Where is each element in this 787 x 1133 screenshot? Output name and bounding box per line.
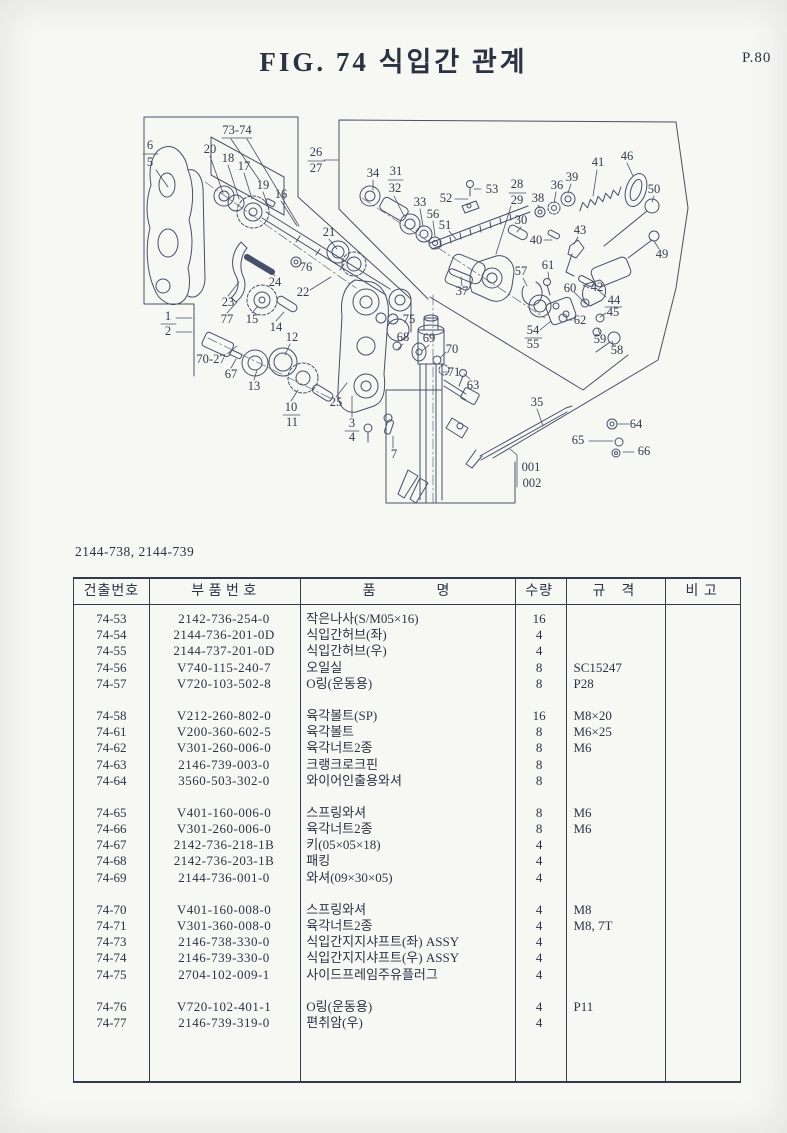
table-cell: 스프링와셔: [299, 902, 513, 918]
table-cell: [565, 611, 664, 627]
table-cell: [663, 773, 740, 789]
table-cell: 74-73: [74, 934, 149, 950]
table-cell: 8: [514, 660, 565, 676]
table-cell: 2146-738-330-0: [149, 934, 300, 950]
part-label: 70-27: [196, 352, 225, 366]
table-cell: 16: [514, 708, 565, 724]
part-label: 58: [611, 343, 624, 357]
part-label: 2: [165, 324, 171, 338]
table-cell: 74-75: [74, 967, 149, 983]
table-cell: [565, 837, 664, 853]
table-cell: [663, 870, 740, 886]
part-label: 34: [367, 166, 380, 180]
part-label: 1: [165, 309, 171, 323]
part-label: 001: [522, 460, 541, 474]
table-cell: V401-160-006-0: [149, 805, 300, 821]
table-row: 74-57V720-103-502-8O링(운동용)8P28: [74, 676, 740, 692]
catalog-page: { "page": { "title": "FIG. 74 식입간 관계", "…: [0, 0, 787, 1133]
table-cell: 식입간허브(좌): [299, 627, 513, 643]
part-label: 46: [621, 149, 634, 163]
part-label: 67: [225, 367, 238, 381]
header-cell: 부 품 번 호: [149, 579, 300, 604]
table-cell: 4: [514, 934, 565, 950]
table-cell: V212-260-802-0: [149, 708, 300, 724]
part-label: 38: [532, 191, 545, 205]
table-cell: 2144-736-201-0D: [149, 627, 300, 643]
table-cell: [565, 934, 664, 950]
table-cell: [565, 950, 664, 966]
part-label: 22: [297, 285, 310, 299]
part-label: 63: [467, 378, 480, 392]
part-label: 41: [592, 155, 605, 169]
part-label: 57: [515, 264, 528, 278]
part-label: 37: [456, 284, 469, 298]
table-cell: 키(05×05×18): [299, 837, 513, 853]
part-label: 13: [248, 379, 261, 393]
table-cell: 74-77: [74, 1015, 149, 1031]
table-cell: [663, 757, 740, 773]
part-label: 24: [269, 275, 282, 289]
table-cell: [565, 870, 664, 886]
table-cell: 식입간지지샤프트(우) ASSY: [299, 950, 513, 966]
table-cell: 8: [514, 676, 565, 692]
table-row: 74-692144-736-001-0와셔(09×30×05)4: [74, 870, 740, 886]
table-cell: 74-63: [74, 757, 149, 773]
table-row: 74-56V740-115-240-7오일실8SC15247: [74, 660, 740, 676]
part-label: 40: [530, 233, 543, 247]
part-label: 64: [630, 417, 643, 431]
part-label: 39: [566, 170, 579, 184]
table-row: 74-61V200-360-602-5육각볼트8M6×25: [74, 724, 740, 740]
table-cell: 육각볼트(SP): [299, 708, 513, 724]
table-cell: 2146-739-319-0: [149, 1015, 300, 1031]
table-cell: [663, 950, 740, 966]
table-cell: 4: [514, 643, 565, 659]
part-label: 73-74: [222, 123, 252, 137]
part-label: 53: [486, 182, 499, 196]
table-cell: 74-66: [74, 821, 149, 837]
part-label: 6: [147, 138, 153, 152]
part-label: 70: [446, 342, 459, 356]
table-cell: 4: [514, 853, 565, 869]
table-cell: 육각너트2종: [299, 918, 513, 934]
column-divider: [665, 579, 666, 1081]
row-group: 74-58V212-260-802-0육각볼트(SP)16M8×2074-61V…: [74, 708, 740, 789]
table-cell: 2704-102-009-1: [149, 967, 300, 983]
part-label: 68: [397, 330, 410, 344]
table-cell: 사이드프레임주유플러그: [299, 967, 513, 983]
header-cell: 건출번호: [74, 579, 149, 604]
table-cell: 74-67: [74, 837, 149, 853]
table-cell: 74-54: [74, 627, 149, 643]
part-label: 18: [222, 151, 235, 165]
table-cell: V301-260-006-0: [149, 821, 300, 837]
part-label: 36: [551, 178, 564, 192]
table-cell: 2146-739-330-0: [149, 950, 300, 966]
table-cell: V720-102-401-1: [149, 999, 300, 1015]
header-cell: 비 고: [663, 579, 740, 604]
part-label: 43: [574, 223, 587, 237]
table-cell: 4: [514, 837, 565, 853]
part-label: 50: [648, 182, 661, 196]
table-cell: 식입간지지샤프트(좌) ASSY: [299, 934, 513, 950]
table-cell: [663, 967, 740, 983]
part-label: 26: [310, 145, 323, 159]
table-row: 74-672142-736-218-1B키(05×05×18)4: [74, 837, 740, 853]
table-cell: 4: [514, 950, 565, 966]
table-cell: M6×25: [565, 724, 664, 740]
table-cell: 8: [514, 724, 565, 740]
table-cell: [565, 627, 664, 643]
part-label: 69: [423, 331, 436, 345]
parts-table: 건출번호부 품 번 호품 명수량규 격비 고 74-532142-736-254…: [73, 577, 741, 1083]
table-cell: M8: [565, 902, 664, 918]
table-cell: 2146-739-003-0: [149, 757, 300, 773]
table-row: 74-742146-739-330-0식입간지지샤프트(우) ASSY4: [74, 950, 740, 966]
table-cell: 8: [514, 740, 565, 756]
part-label: 30: [515, 213, 528, 227]
part-label: 002: [523, 476, 542, 490]
part-label: 49: [656, 247, 669, 261]
table-row: 74-772146-739-319-0편취암(우)4: [74, 1015, 740, 1031]
table-cell: M8×20: [565, 708, 664, 724]
worm-and-lever-group: [231, 242, 298, 315]
part-label: 32: [389, 181, 402, 195]
part-label: 29: [511, 193, 524, 207]
table-cell: [663, 643, 740, 659]
table-cell: 4: [514, 627, 565, 643]
table-cell: 8: [514, 805, 565, 821]
table-cell: V740-115-240-7: [149, 660, 300, 676]
table-row: 74-66V301-260-006-0육각너트2종8M6: [74, 821, 740, 837]
table-cell: 74-64: [74, 773, 149, 789]
table-cell: 8: [514, 821, 565, 837]
table-cell: [663, 660, 740, 676]
table-cell: 패킹: [299, 853, 513, 869]
table-row: 74-70V401-160-008-0스프링와셔4M8: [74, 902, 740, 918]
table-cell: 2142-736-218-1B: [149, 837, 300, 853]
table-cell: [565, 967, 664, 983]
table-cell: 육각볼트: [299, 724, 513, 740]
row-group: 74-532142-736-254-0작은나사(S/M05×16)1674-54…: [74, 611, 740, 692]
table-cell: 작은나사(S/M05×16): [299, 611, 513, 627]
center-housing: [338, 280, 388, 412]
table-cell: 2144-736-001-0: [149, 870, 300, 886]
part-label: 3: [349, 416, 355, 430]
table-cell: V200-360-602-5: [149, 724, 300, 740]
table-cell: [565, 773, 664, 789]
table-cell: V301-260-006-0: [149, 740, 300, 756]
table-cell: 16: [514, 611, 565, 627]
table-cell: 와이어인출용와셔: [299, 773, 513, 789]
table-row: 74-632146-739-003-0크랭크로크핀8: [74, 757, 740, 773]
table-cell: [565, 1015, 664, 1031]
column-divider: [566, 579, 567, 1081]
part-label: 10: [285, 400, 298, 414]
row-group: 74-70V401-160-008-0스프링와셔4M874-71V301-360…: [74, 902, 740, 983]
part-label: 42: [591, 280, 604, 294]
table-cell: [663, 611, 740, 627]
table-cell: [565, 643, 664, 659]
part-label: 33: [414, 195, 427, 209]
header-cell: 수량: [514, 579, 565, 604]
table-row: 74-643560-503-302-0와이어인출용와셔8: [74, 773, 740, 789]
table-cell: 74-62: [74, 740, 149, 756]
part-label: 11: [286, 415, 298, 429]
part-label: 15: [246, 312, 259, 326]
part-label: 71: [448, 365, 461, 379]
part-label: 51: [439, 218, 452, 232]
table-cell: [663, 934, 740, 950]
table-cell: [663, 902, 740, 918]
table-cell: [565, 757, 664, 773]
table-cell: SC15247: [565, 660, 664, 676]
table-cell: 편취암(우): [299, 1015, 513, 1031]
table-cell: P28: [565, 676, 664, 692]
table-cell: [663, 724, 740, 740]
part-label: 76: [300, 260, 313, 274]
table-cell: 74-65: [74, 805, 149, 821]
table-cell: 2144-737-201-0D: [149, 643, 300, 659]
table-cell: 4: [514, 1015, 565, 1031]
part-label: 54: [527, 323, 540, 337]
part-label: 12: [286, 330, 299, 344]
part-label: 23: [222, 295, 235, 309]
column-divider: [515, 579, 516, 1081]
table-cell: 8: [514, 757, 565, 773]
table-cell: 8: [514, 773, 565, 789]
table-cell: 육각너트2종: [299, 740, 513, 756]
table-cell: [663, 821, 740, 837]
table-cell: V720-103-502-8: [149, 676, 300, 692]
table-row: 74-62V301-260-006-0육각너트2종8M6: [74, 740, 740, 756]
table-cell: [663, 853, 740, 869]
table-cell: 3560-503-302-0: [149, 773, 300, 789]
table-cell: [565, 853, 664, 869]
part-label: 21: [323, 225, 336, 239]
table-cell: 와셔(09×30×05): [299, 870, 513, 886]
column-divider: [300, 579, 301, 1081]
part-label: 77: [221, 312, 234, 326]
table-cell: 74-71: [74, 918, 149, 934]
table-cell: [663, 627, 740, 643]
table-cell: 4: [514, 999, 565, 1015]
table-cell: 2142-736-254-0: [149, 611, 300, 627]
part-label: 16: [275, 187, 288, 201]
table-cell: [663, 740, 740, 756]
table-cell: P11: [565, 999, 664, 1015]
part-label: 56: [427, 207, 440, 221]
table-row: 74-682142-736-203-1B패킹4: [74, 853, 740, 869]
table-row: 74-732146-738-330-0식입간지지샤프트(좌) ASSY4: [74, 934, 740, 950]
table-cell: 74-68: [74, 853, 149, 869]
table-cell: 4: [514, 870, 565, 886]
table-cell: [663, 708, 740, 724]
table-cell: O링(운동용): [299, 676, 513, 692]
part-label: 4: [349, 430, 356, 444]
part-label: 35: [531, 395, 544, 409]
table-cell: 육각너트2종: [299, 821, 513, 837]
header-cell: 품 명: [299, 579, 513, 604]
table-row: 74-76V720-102-401-1O링(운동용)4P11: [74, 999, 740, 1015]
part-label: 19: [257, 178, 270, 192]
exploded-parts-diagram: 73-7465201817191626273431323356515253282…: [0, 0, 787, 545]
table-cell: [663, 999, 740, 1015]
table-cell: 74-57: [74, 676, 149, 692]
needle-bar-assembly: [364, 289, 480, 503]
table-cell: 2142-736-203-1B: [149, 853, 300, 869]
table-cell: M6: [565, 740, 664, 756]
table-cell: 74-53: [74, 611, 149, 627]
part-label: 59: [594, 332, 607, 346]
header-cell: 규 격: [565, 579, 664, 604]
table-cell: M6: [565, 805, 664, 821]
table-row: 74-542144-736-201-0D식입간허브(좌)4: [74, 627, 740, 643]
table-cell: [663, 837, 740, 853]
lower-left-cluster: [201, 331, 334, 402]
row-group: 74-76V720-102-401-1O링(운동용)4P1174-772146-…: [74, 999, 740, 1031]
part-label: 65: [572, 433, 585, 447]
table-cell: [663, 676, 740, 692]
table-cell: M8, 7T: [565, 918, 664, 934]
part-label: 62: [574, 313, 587, 327]
part-label: 45: [607, 305, 620, 319]
part-label: 25: [330, 395, 343, 409]
part-label: 66: [638, 444, 651, 458]
figure-caption: 2144-738, 2144-739: [75, 544, 194, 560]
table-cell: 74-61: [74, 724, 149, 740]
table-cell: V401-160-008-0: [149, 902, 300, 918]
part-label: 17: [238, 159, 251, 173]
table-cell: 4: [514, 918, 565, 934]
table-cell: [663, 1015, 740, 1031]
table-cell: M6: [565, 821, 664, 837]
row-group: 74-65V401-160-006-0스프링와셔8M674-66V301-260…: [74, 805, 740, 886]
table-row: 74-752704-102-009-1사이드프레임주유플러그4: [74, 967, 740, 983]
table-cell: 4: [514, 967, 565, 983]
table-row: 74-71V301-360-008-0육각너트2종4M8, 7T: [74, 918, 740, 934]
table-cell: 크랭크로크핀: [299, 757, 513, 773]
table-row: 74-58V212-260-802-0육각볼트(SP)16M8×20: [74, 708, 740, 724]
table-cell: 4: [514, 902, 565, 918]
table-header-row: 건출번호부 품 번 호품 명수량규 격비 고: [74, 579, 740, 605]
table-cell: 74-56: [74, 660, 149, 676]
table-cell: 74-74: [74, 950, 149, 966]
table-cell: 74-70: [74, 902, 149, 918]
part-label: 20: [204, 142, 217, 156]
part-label: 75: [403, 312, 416, 326]
part-label: 61: [542, 258, 555, 272]
part-label: 28: [511, 177, 524, 191]
table-cell: 74-55: [74, 643, 149, 659]
table-cell: V301-360-008-0: [149, 918, 300, 934]
table-cell: 스프링와셔: [299, 805, 513, 821]
part-label: 5: [147, 155, 153, 169]
table-cell: 오일실: [299, 660, 513, 676]
part-label: 60: [564, 281, 577, 295]
table-body: 74-532142-736-254-0작은나사(S/M05×16)1674-54…: [74, 605, 740, 1031]
table-cell: 74-58: [74, 708, 149, 724]
part-label: 31: [390, 164, 403, 178]
table-row: 74-552144-737-201-0D식입간허브(우)4: [74, 643, 740, 659]
part-label: 55: [527, 337, 540, 351]
table-cell: [663, 918, 740, 934]
table-cell: O링(운동용): [299, 999, 513, 1015]
input-gear-train: [214, 186, 390, 295]
table-cell: 74-69: [74, 870, 149, 886]
part-label: 52: [440, 191, 453, 205]
column-divider: [149, 579, 150, 1081]
table-cell: 74-76: [74, 999, 149, 1015]
table-cell: 식입간허브(우): [299, 643, 513, 659]
part-label: 7: [391, 447, 397, 461]
part-label: 27: [310, 161, 323, 175]
part-label: 14: [270, 320, 283, 334]
table-cell: [663, 805, 740, 821]
table-row: 74-532142-736-254-0작은나사(S/M05×16)16: [74, 611, 740, 627]
table-row: 74-65V401-160-006-0스프링와셔8M6: [74, 805, 740, 821]
